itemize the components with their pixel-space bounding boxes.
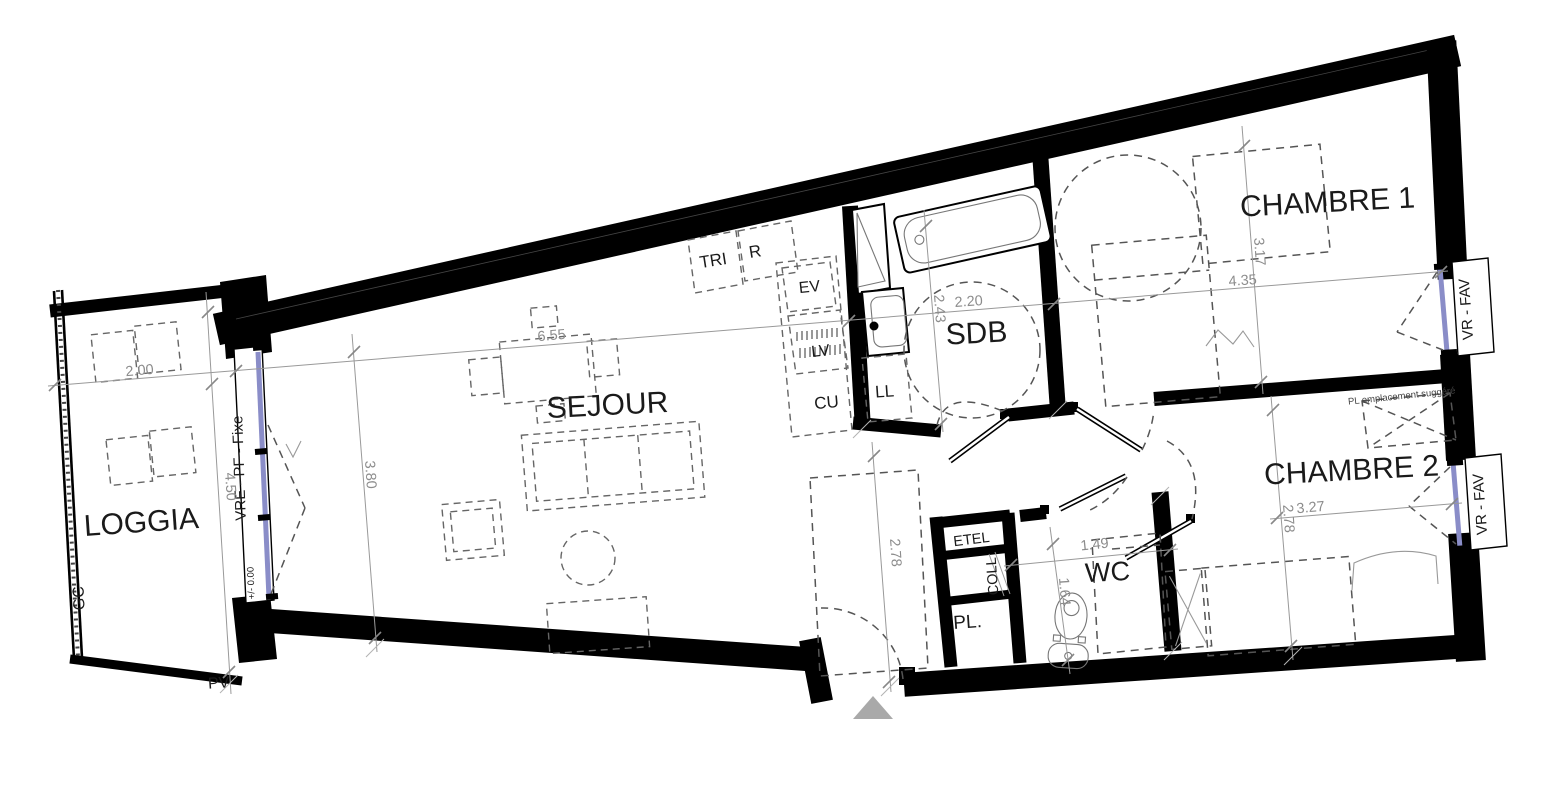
dim-line-sejour-vertical <box>352 334 377 652</box>
window-swing-fav1 <box>1397 272 1443 350</box>
label-tri: TRI <box>698 249 728 272</box>
label-coll: COLL <box>984 557 1003 596</box>
loggia-furniture <box>90 321 196 486</box>
sofa-divider-1 <box>584 439 589 497</box>
dim-ch1-l: 3.17 <box>1250 237 1268 266</box>
toilet-hinge-right <box>1078 637 1085 643</box>
window-swing-mark <box>286 441 301 457</box>
label-ll: LL <box>875 381 895 401</box>
room-labels: LOGGIA SEJOUR SDB CHAMBRE 1 CHAMBRE 2 WC <box>83 181 1440 588</box>
r-box <box>738 221 798 281</box>
window-fav1-frame-bottom <box>1441 352 1457 353</box>
wall-right-lower <box>1464 548 1470 646</box>
door-arc-chambre1 <box>1142 410 1154 450</box>
chambre1-bed <box>1092 235 1221 406</box>
room-label-sdb: SDB <box>945 315 1008 351</box>
wall-etel-bottom <box>939 548 1011 556</box>
label-pv: PV <box>207 674 230 692</box>
bathtub <box>893 185 1052 273</box>
door-leaf-sdb-fill <box>950 417 1009 461</box>
door-arc-entry <box>821 608 903 679</box>
window-fav2-frame-bottom <box>1454 548 1470 549</box>
dim-ch2-w: 3.27 <box>1296 499 1326 517</box>
wall-closet-left <box>936 517 951 667</box>
dining-chair-top <box>530 306 558 328</box>
chambre2-bed-group <box>1201 556 1355 655</box>
entrance-arrow <box>853 696 893 719</box>
sofa-seat <box>532 431 694 501</box>
sofa-divider-2 <box>638 435 643 493</box>
armchair-outline <box>442 499 505 560</box>
room-label-chambre2: CHAMBRE 2 <box>1263 449 1440 491</box>
window-mullion-1 <box>255 451 267 452</box>
chambre1-sketch <box>1206 330 1254 347</box>
dim-sdb-w: 2.20 <box>954 293 983 311</box>
room-label-sejour: SEJOUR <box>546 386 669 425</box>
sofa-outline <box>521 421 704 511</box>
wall-window-bottom-block <box>232 594 277 663</box>
window-glazing-fav1 <box>1440 268 1447 352</box>
washbasin-faucet <box>870 322 879 331</box>
entry-clearance-box <box>810 470 928 676</box>
dim-sejour-l: 6.55 <box>537 327 567 345</box>
wall-top-joint-line <box>236 48 1438 319</box>
door-leaf-chambre1-fill <box>1077 409 1141 450</box>
dim-sejour-w: 3.80 <box>361 460 379 489</box>
window-frame-bottom <box>266 596 278 597</box>
sofa-group <box>521 421 704 511</box>
label-r: R <box>748 241 763 262</box>
floor-plan-svg: VRE - PF - Fixe +/- 0.00 VR - FAV VR - F… <box>0 0 1547 800</box>
dim-loggia-l: 4.50 <box>221 472 239 501</box>
wall-bottom-sejour <box>256 620 806 659</box>
label-cu: CU <box>813 392 839 413</box>
loggia-chair-4 <box>149 427 196 477</box>
floor-plan-canvas: VRE - PF - Fixe +/- 0.00 VR - FAV VR - F… <box>0 0 1547 800</box>
window-fav1-frame-top <box>1434 266 1450 267</box>
chambre2-headboard <box>1352 551 1438 590</box>
window-swing-loggia <box>268 425 305 594</box>
dim-loggia-w: 2.00 <box>125 362 155 380</box>
wall-sdb-chambre1 <box>1040 152 1058 411</box>
kitchen-dishwasher-lv <box>788 310 848 374</box>
window-fav2-frame-top <box>1447 462 1463 463</box>
chambre2-bed <box>1201 556 1355 655</box>
window-frame-top <box>253 347 265 348</box>
dim-wc-l: 1.64 <box>1055 577 1073 606</box>
label-ev: EV <box>798 278 821 297</box>
dimension-labels: 2.00 4.50 6.55 3.80 2.20 2.43 4.35 3.17 … <box>125 237 1326 606</box>
door-leaf-wc-fill <box>1060 476 1126 509</box>
wall-etel-top <box>936 515 1010 523</box>
room-label-loggia: LOGGIA <box>83 502 200 543</box>
wall-bottom-right <box>916 646 1470 684</box>
wall-right-middle <box>1455 354 1461 460</box>
label-pl: PL. <box>953 611 983 634</box>
dim-entry-l: 2.78 <box>886 538 904 567</box>
armchair-seat <box>450 508 495 552</box>
label-gc: GC <box>70 586 88 611</box>
wall-loggia-top <box>50 291 226 311</box>
door-arc-chambre2 <box>1167 441 1196 519</box>
room-label-wc: WC <box>1084 556 1130 588</box>
room-label-chambre1: CHAMBRE 1 <box>1239 181 1416 223</box>
bathtub-outer <box>893 185 1052 273</box>
loggia-chair-3 <box>106 435 153 485</box>
dim-wc-w: 1.49 <box>1080 536 1110 555</box>
furniture <box>90 144 1456 676</box>
chambre1-bed-group <box>1092 235 1221 406</box>
level-label: +/- 0.00 <box>245 567 257 600</box>
chambre1-clearance-circle <box>1055 155 1201 301</box>
wall-right-upper <box>1442 56 1452 264</box>
round-table <box>561 531 615 585</box>
window-mullion-2 <box>258 517 270 518</box>
dim-ch2-l: 2.78 <box>1279 504 1297 533</box>
dining-chair-left <box>469 357 504 396</box>
chambre1-bed-pillow-line <box>1095 270 1210 280</box>
wall-wc-left <box>1008 513 1020 663</box>
hinge-block-wc <box>1040 505 1049 514</box>
dim-ch1-w: 4.35 <box>1228 272 1257 290</box>
toilet-hinge-left <box>1053 635 1060 641</box>
dim-sdb-l: 2.43 <box>930 294 948 323</box>
armchair-group <box>442 499 505 560</box>
label-lv: LV <box>810 342 830 361</box>
